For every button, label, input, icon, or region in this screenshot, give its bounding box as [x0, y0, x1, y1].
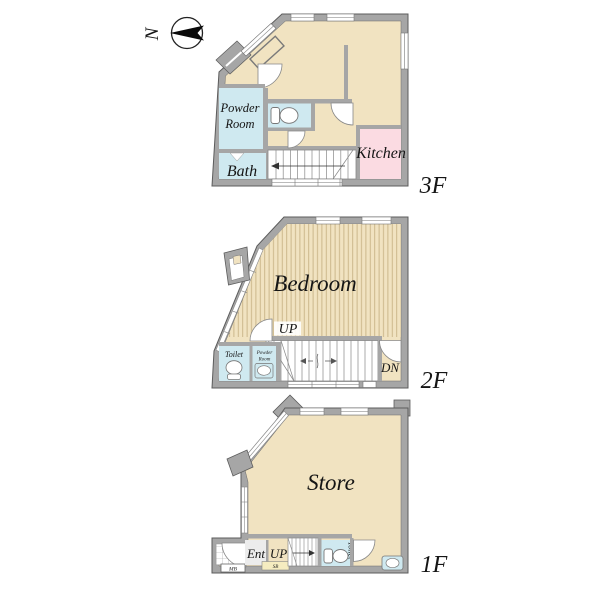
wall — [219, 84, 265, 88]
wall — [311, 104, 315, 128]
wall — [268, 128, 315, 132]
stairs-3f — [268, 150, 356, 179]
wall — [356, 125, 401, 129]
stairs-2f — [266, 341, 378, 382]
toilet-icon-3f — [271, 108, 298, 124]
label-sb-1f: SB — [273, 565, 279, 570]
label-dn-2f: DN — [380, 360, 400, 375]
label-powder-2f: Powder — [256, 351, 273, 356]
wall — [219, 342, 279, 346]
label-bedroom-2f: Bedroom — [273, 271, 356, 296]
label-store-1f: Store — [307, 470, 355, 495]
label-toilet-2f: Toilet — [225, 350, 244, 359]
floor-label-2f: 2F — [421, 368, 448, 394]
window-left-1f — [242, 487, 248, 533]
floor-plan-drawing: N Powder Room Bath — [0, 0, 600, 600]
label-bath-3f: Bath — [227, 163, 257, 180]
label-ent-1f: Ent — [246, 546, 265, 561]
floor-label-3f: 3F — [419, 173, 447, 199]
alcove-fixture-2f — [233, 255, 241, 265]
label-kitchen-3f: Kitchen — [355, 145, 406, 162]
sink-icon-1f — [382, 556, 403, 570]
stairs-1f — [288, 538, 318, 566]
wall — [350, 538, 354, 566]
toilet-icon-2f — [226, 361, 242, 380]
wall — [268, 146, 360, 150]
label-up-2f: UP — [279, 322, 298, 337]
label-powder-room-3f: Powder — [220, 101, 260, 115]
label-powder-room-3f: Room — [224, 117, 254, 131]
floor-plan-3f: Powder Room Bath Kitchen — [212, 14, 447, 199]
wall-partition-3f — [344, 45, 348, 103]
floor-plan-1f: Store MB Ent UP SB Toilet — [212, 395, 448, 578]
toilet-icon-1f — [324, 549, 348, 563]
wall — [250, 346, 253, 381]
label-powder-2f: Room — [258, 358, 271, 363]
sink-icon-2f — [255, 364, 273, 379]
wall — [276, 342, 281, 381]
floor-plan-page: N Powder Room Bath — [0, 0, 600, 600]
wall — [318, 538, 322, 566]
north-indicator: N — [142, 18, 204, 49]
north-label: N — [142, 26, 163, 41]
label-up-1f: UP — [270, 546, 287, 561]
floor-plan-2f: Bedroom UP Toilet Powder — [212, 217, 448, 394]
label-mb-1f: MB — [228, 566, 238, 572]
floor-label-1f: 1F — [421, 552, 448, 578]
wall — [219, 149, 268, 153]
